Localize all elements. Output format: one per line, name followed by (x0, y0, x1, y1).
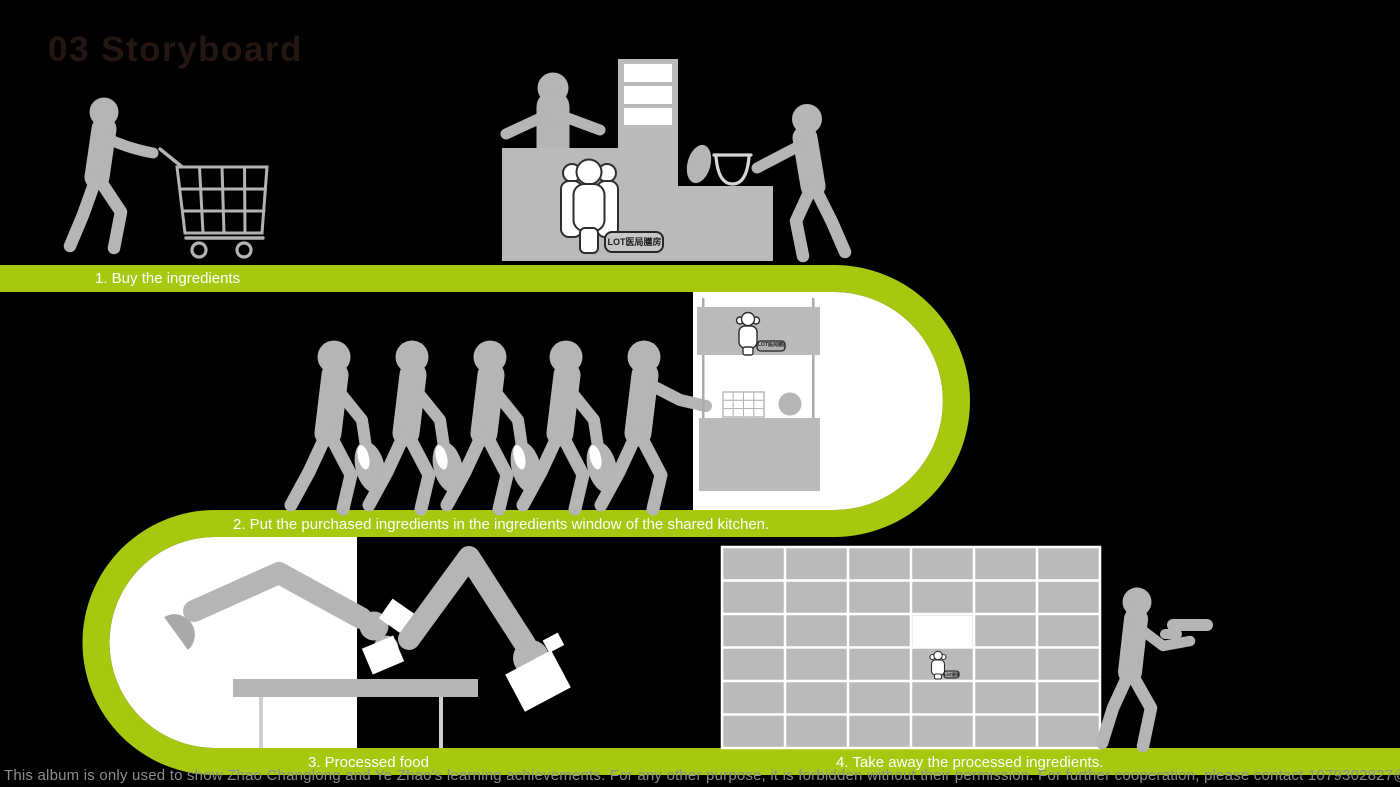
page-title: 03 Storyboard (48, 30, 303, 70)
lot-brand-sign: LOT医局膳房 (606, 237, 663, 248)
food-package (362, 635, 404, 674)
pass-window-grid (723, 392, 764, 417)
walking-queue (291, 341, 706, 510)
shelf-items (624, 64, 672, 125)
step-label-1: 1. Buy the ingredients (95, 271, 240, 286)
step-label-2: 2. Put the purchased ingredients in the … (233, 517, 769, 532)
prep-table (233, 679, 478, 697)
ingredient-ball (779, 393, 802, 416)
lot-brand-sign-tiny: LOT医局膳房 (944, 672, 959, 677)
left-loop-interior (110, 537, 358, 748)
shopping-cart-icon (160, 149, 267, 257)
grocery-bag-oval (683, 142, 715, 186)
bowl-icon (714, 155, 751, 184)
shopper-figure (70, 98, 153, 249)
checkout-scene (502, 59, 845, 261)
storyboard-graphic (0, 0, 1400, 787)
robot-arm-right (409, 557, 525, 644)
counter-side (678, 186, 773, 261)
lot-brand-sign-small: LOT医局膳房 (758, 342, 785, 349)
storyboard-page: 03 Storyboard 1. Buy the ingredients 2. … (0, 0, 1400, 787)
copyright-disclaimer: This album is only used to show Zhao Cha… (4, 767, 1400, 784)
window-counter (699, 418, 820, 491)
walking-figure-depositing (601, 341, 706, 510)
locker-grid (722, 547, 1100, 748)
pickup-figure (1102, 588, 1213, 747)
open-locker-cell (913, 616, 973, 647)
cashier-figure (506, 73, 600, 149)
